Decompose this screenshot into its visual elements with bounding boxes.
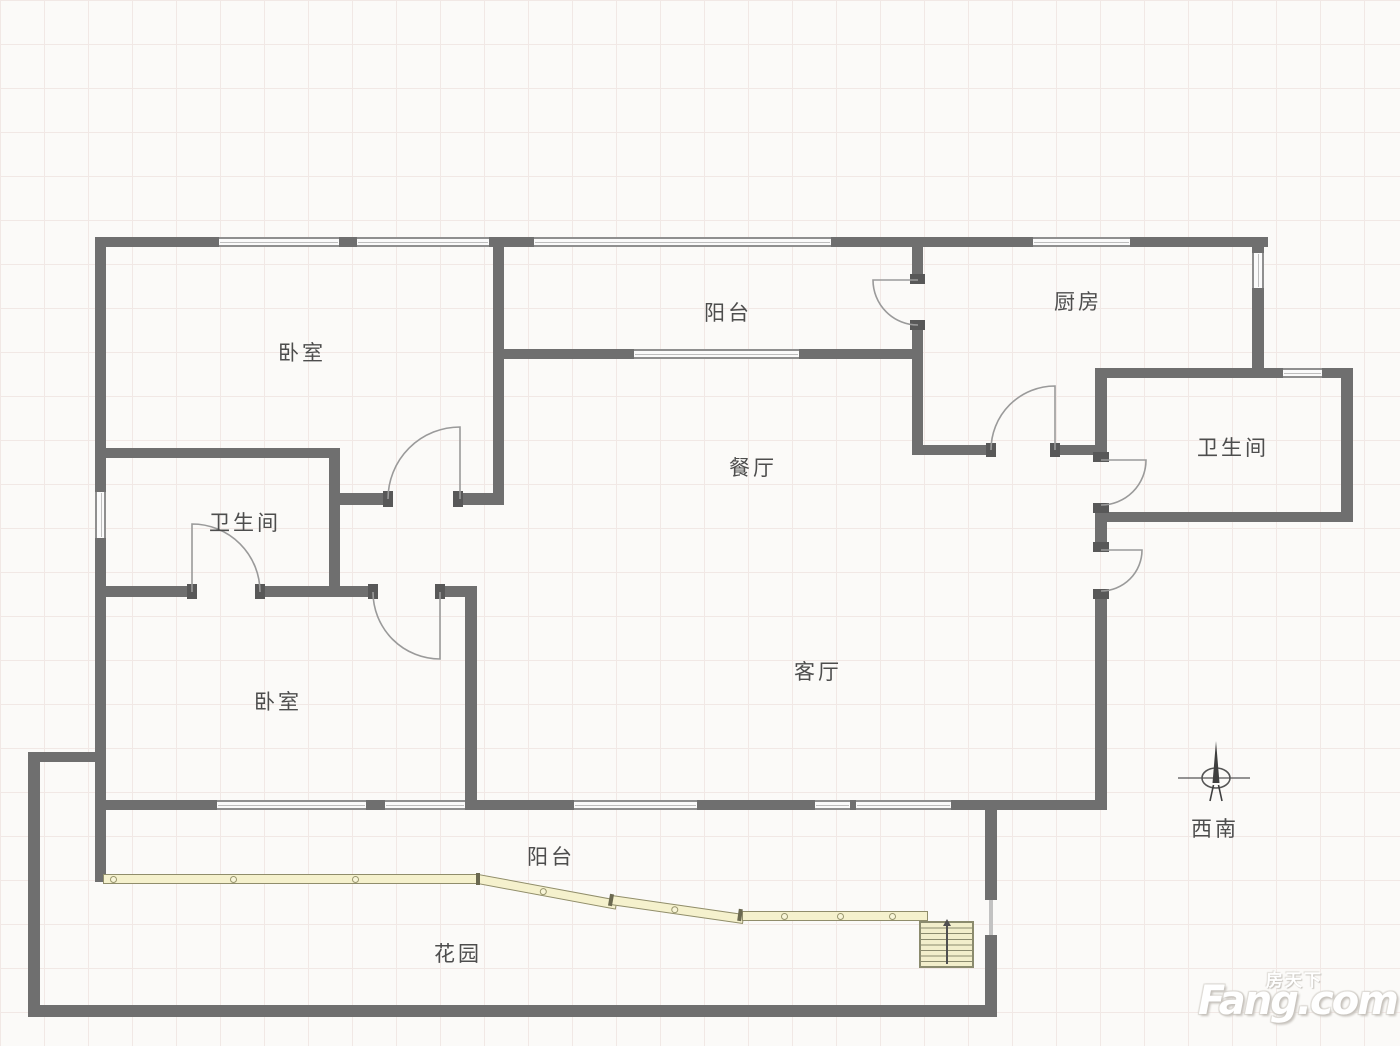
room-label-kitchen: 厨房	[1054, 286, 1102, 316]
railing-post	[889, 913, 896, 920]
room-label-balcony-bottom: 阳台	[527, 841, 575, 871]
room-label-bathroom-right: 卫生间	[1197, 432, 1269, 462]
railing-segment	[742, 911, 928, 921]
stairs	[919, 921, 974, 968]
compass-direction-label: 西南	[1191, 813, 1239, 843]
door-arc-bedroom-top	[388, 427, 460, 499]
door-arc-kitchen-balcony	[873, 280, 918, 325]
railing-post	[230, 876, 237, 883]
door-arc-bedroom-bottom	[373, 592, 440, 659]
railing-post	[781, 913, 788, 920]
railing-segment	[103, 874, 480, 884]
railing-joint	[476, 873, 480, 885]
railing-post	[352, 876, 359, 883]
room-label-dining: 餐厅	[729, 452, 777, 482]
railing-post	[539, 888, 547, 896]
railing-post	[837, 913, 844, 920]
railing-post	[110, 876, 117, 883]
room-label-bathroom-left: 卫生间	[209, 507, 281, 537]
fang-watermark-en: Fang.com	[1198, 978, 1397, 1024]
room-label-garden: 花园	[434, 938, 482, 968]
room-label-balcony-top: 阳台	[704, 297, 752, 327]
door-arc-bathroom-right	[1101, 460, 1146, 505]
stairs-up-arrow-icon	[943, 919, 951, 926]
door-arc-entry	[1101, 550, 1142, 591]
railing-post	[671, 906, 679, 914]
room-label-bedroom-bottom: 卧室	[254, 686, 302, 716]
room-label-bedroom-top: 卧室	[278, 337, 326, 367]
stairs-direction-line	[946, 925, 948, 964]
fang-watermark: 房天下 Fang.com	[1198, 966, 1398, 1036]
door-arc-kitchen-dining	[991, 386, 1055, 450]
floor-plan: 卧室 阳台 厨房 卫生间 餐厅 卫生间 卧室 客厅 阳台 花园 西南 房天下 F…	[0, 0, 1400, 1046]
room-label-living: 客厅	[794, 656, 842, 686]
compass-icon	[1170, 735, 1270, 815]
